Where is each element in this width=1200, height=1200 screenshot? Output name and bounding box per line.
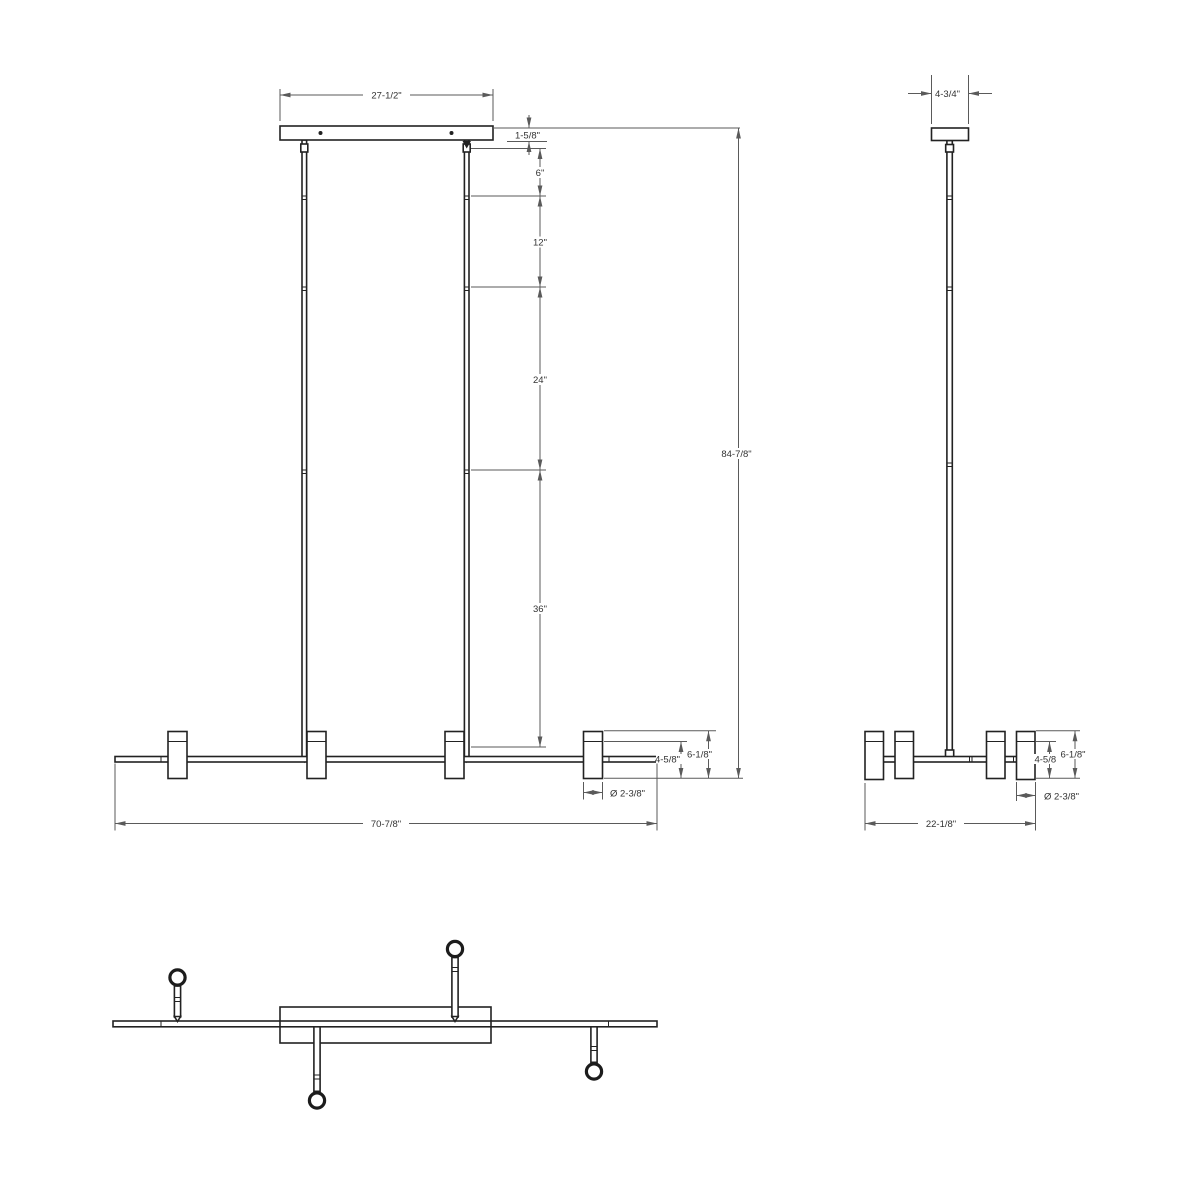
dim-label-rod-segment-2: 12" — [533, 238, 547, 249]
front-right-downrod — [463, 140, 472, 762]
light-head — [865, 732, 884, 780]
plan-light-head — [586, 1027, 601, 1079]
light-head — [168, 732, 187, 779]
plan-light-head — [170, 970, 185, 1022]
front-light-heads — [168, 732, 603, 779]
bottom-view — [113, 941, 657, 1108]
dim-front-head-heights: 4-5/8" 6-1/8" — [604, 731, 743, 779]
plan-head-lens — [447, 941, 462, 956]
dim-front-head-diameter: Ø 2-3/8" — [584, 782, 646, 800]
dim-label-side-canopy-width: 4-3/4" — [935, 89, 960, 100]
dim-label-front-overall-width: 70-7/8" — [371, 819, 401, 830]
front-light-bar — [115, 757, 657, 763]
pendant-fixture-dimension-drawing: 27-1/2" 1-5/8" 6" 12" 24" — [0, 0, 1200, 1200]
side-view: 4-3/4" 4-5/8" 6-1/8" Ø 2-3/8" 22-1/8" — [865, 75, 1090, 831]
dim-side-head-diameter: Ø 2-3/8" — [1017, 782, 1080, 803]
light-head — [307, 732, 326, 779]
dim-front-overall-width: 70-7/8" — [115, 764, 657, 831]
dim-label-front-overall-height: 84-7/8" — [721, 449, 751, 460]
dim-side-canopy-width: 4-3/4" — [908, 75, 992, 124]
technical-drawing-page: 27-1/2" 1-5/8" 6" 12" 24" — [0, 0, 1200, 1200]
dim-label-front-head-body-height: 4-5/8" — [655, 755, 680, 766]
canopy-screw — [319, 131, 323, 135]
dim-front-overall-height: 84-7/8" — [714, 128, 759, 778]
front-left-downrod — [301, 140, 308, 762]
plan-head-lens — [309, 1093, 324, 1108]
plan-light-head — [447, 941, 462, 1021]
front-canopy — [280, 126, 493, 140]
dim-side-head-heights: 4-5/8" 6-1/8" — [1030, 731, 1090, 779]
dim-side-overall-width: 22-1/8" — [865, 782, 1036, 831]
plan-light-bar — [113, 1021, 657, 1027]
plan-light-head — [309, 1027, 324, 1108]
dim-front-canopy-width: 27-1/2" — [280, 89, 493, 121]
canopy-screw — [450, 131, 454, 135]
dim-label-rod-segment-3: 24" — [533, 375, 547, 386]
side-downrod — [946, 141, 954, 759]
plan-head-lens — [586, 1064, 601, 1079]
dim-label-side-overall-width: 22-1/8" — [926, 819, 956, 830]
dim-label-front-head-diameter: Ø 2-3/8" — [610, 789, 645, 800]
side-canopy — [932, 128, 969, 141]
front-view: 27-1/2" 1-5/8" 6" 12" 24" — [115, 89, 759, 831]
dim-label-front-canopy-width: 27-1/2" — [371, 91, 401, 102]
dim-label-side-head-body-height: 4-5/8" — [1034, 755, 1059, 766]
dim-front-rod-segments: 6" 12" 24" 36" — [471, 149, 550, 748]
dim-label-front-head-overall-height: 6-1/8" — [687, 750, 712, 761]
dim-label-side-head-diameter: Ø 2-3/8" — [1044, 792, 1079, 803]
light-head — [584, 732, 603, 779]
light-head — [445, 732, 464, 779]
dim-label-front-canopy-thickness: 1-5/8" — [515, 131, 540, 142]
dim-label-side-head-overall-height: 6-1/8" — [1060, 750, 1085, 761]
light-head — [895, 732, 914, 779]
dim-label-rod-segment-1: 6" — [536, 168, 545, 179]
plan-head-lens — [170, 970, 185, 985]
dim-label-rod-segment-4: 36" — [533, 604, 547, 615]
light-head — [987, 732, 1006, 779]
